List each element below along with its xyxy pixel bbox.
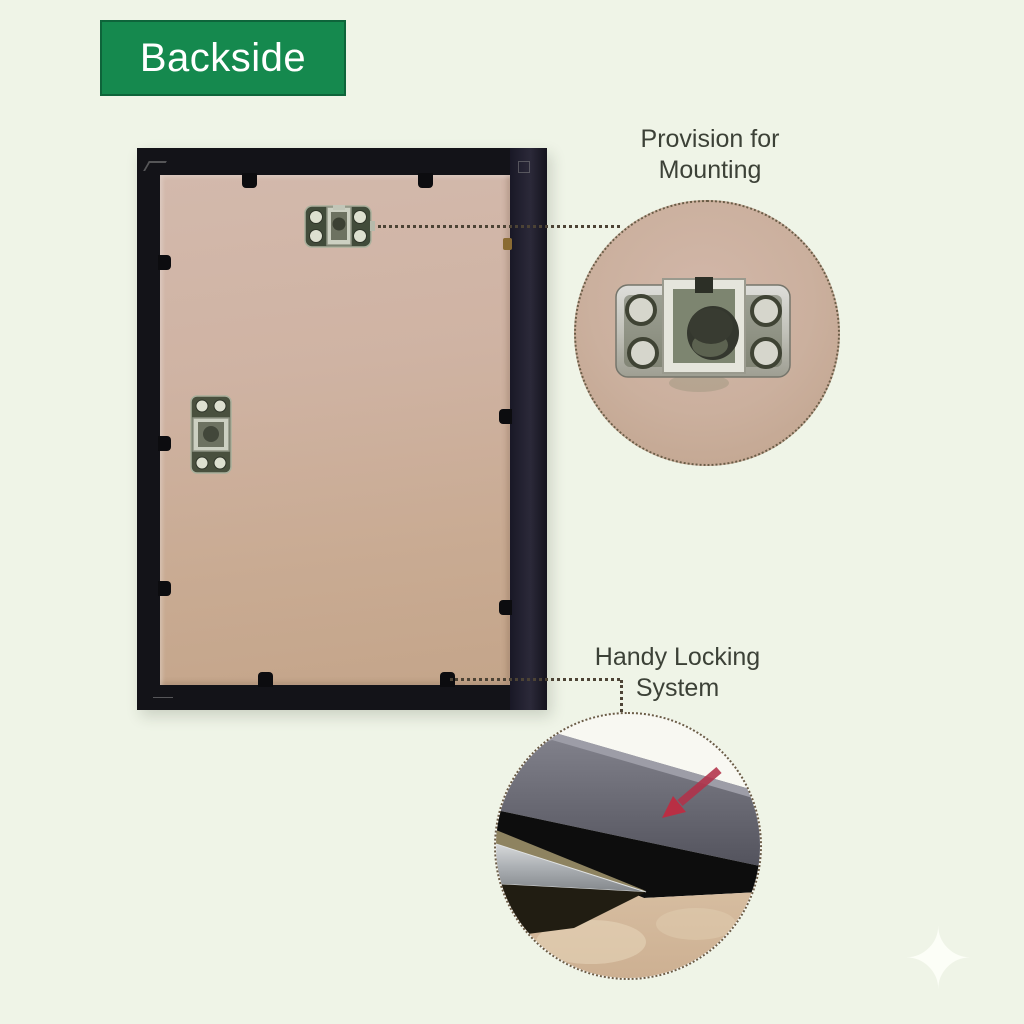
frame-corner-mark — [143, 161, 167, 171]
locking-tab — [499, 600, 512, 615]
sparkle-icon: ✦ — [903, 917, 973, 1001]
mounting-label: Provision for Mounting — [595, 124, 825, 186]
locking-label: Handy Locking System — [560, 642, 795, 704]
mounting-bracket-top — [304, 204, 376, 249]
locking-tab — [499, 409, 512, 424]
mounting-zoom-circle — [574, 200, 840, 466]
locking-label-line2: System — [560, 673, 795, 704]
frame-corner-mark — [518, 161, 530, 173]
backside-banner-label: Backside — [140, 36, 306, 81]
backside-banner: Backside — [100, 20, 346, 96]
locking-tab — [158, 436, 171, 451]
locking-tab — [242, 173, 257, 188]
product-infographic: Backside — [0, 0, 1024, 1024]
frame-bottom-mark — [153, 697, 173, 701]
frame-right-edge — [510, 148, 547, 710]
mounting-bracket-closeup — [576, 202, 838, 464]
locking-tab — [158, 255, 171, 270]
locking-tab — [418, 173, 433, 188]
frame-back-photo — [137, 148, 547, 710]
locking-system-closeup — [496, 714, 760, 978]
mounting-bracket-side — [189, 395, 233, 475]
mounting-label-line2: Mounting — [595, 155, 825, 186]
locking-tab — [258, 672, 273, 687]
brass-pin — [503, 238, 512, 250]
locking-tab — [158, 581, 171, 596]
locking-zoom-circle — [494, 712, 762, 980]
locking-label-line1: Handy Locking — [560, 642, 795, 673]
mounting-label-line1: Provision for — [595, 124, 825, 155]
